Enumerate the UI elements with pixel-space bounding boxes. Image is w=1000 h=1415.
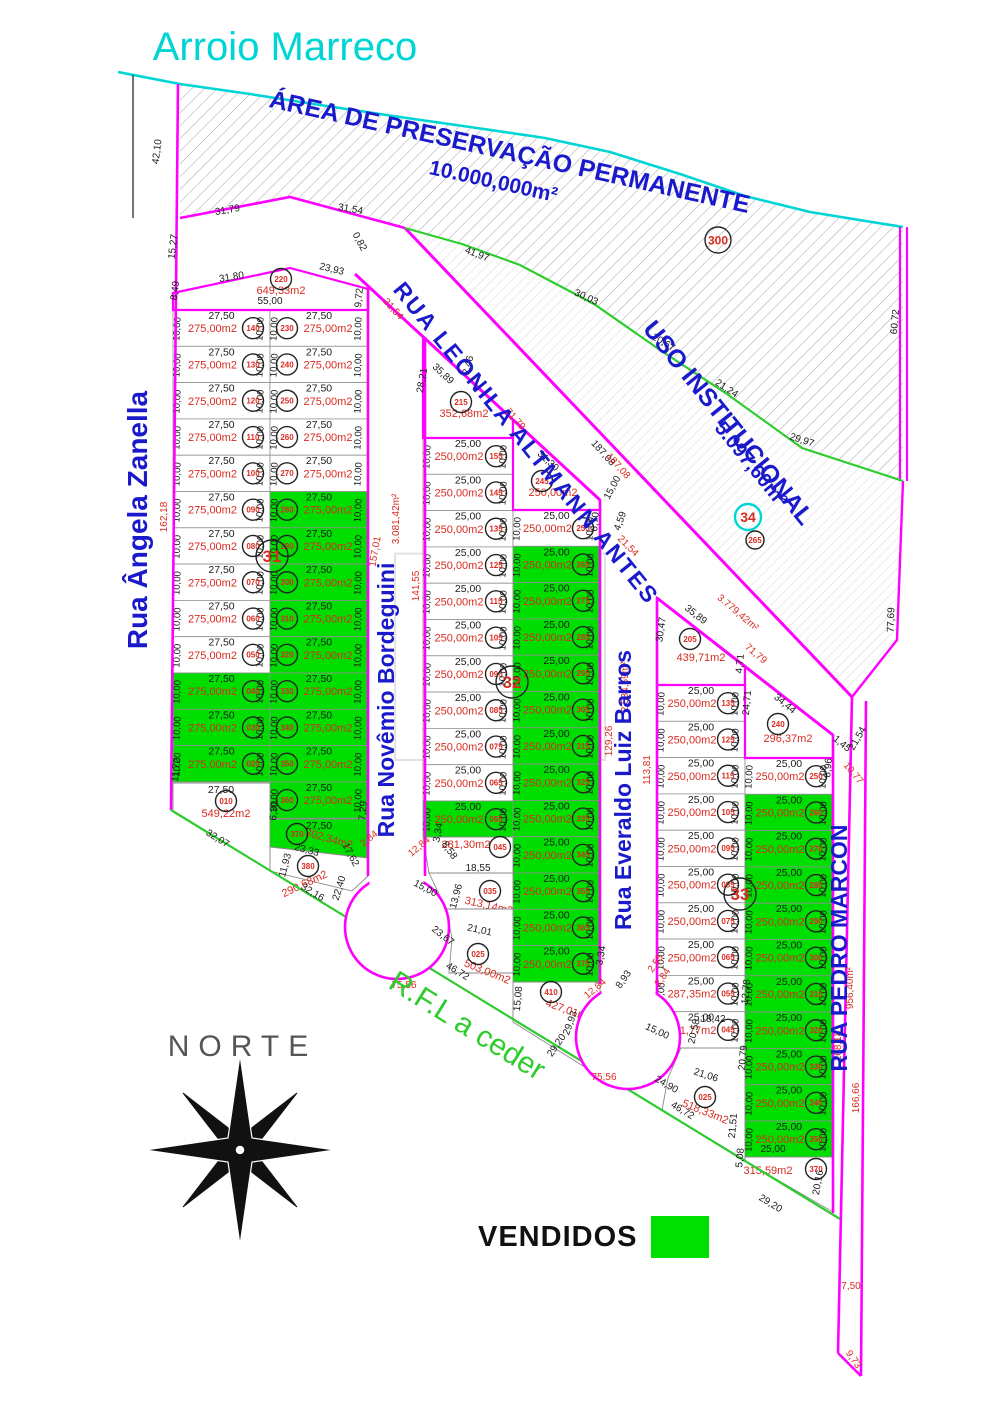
lot-area: 275,00m2 bbox=[304, 323, 353, 335]
dim-label: 10,77 bbox=[841, 760, 866, 787]
lot-height-dim: 10,00 bbox=[352, 535, 364, 559]
lot-height-dim: 10,00 bbox=[511, 771, 523, 795]
lot-area: 250,00m2 bbox=[756, 880, 805, 892]
lot-area: 250,00m2 bbox=[668, 771, 717, 783]
lot-width-dim: 25,00 bbox=[776, 1048, 802, 1060]
lot-31-130-number: 130 bbox=[246, 360, 260, 369]
lot-width-dim: 25,00 bbox=[455, 474, 481, 486]
lot-height-dim: 10,00 bbox=[421, 590, 433, 614]
lot-width-dim: 27,50 bbox=[208, 637, 234, 649]
lot-area: 250,00m2 bbox=[523, 814, 572, 826]
lot-31-260-number: 260 bbox=[280, 433, 294, 442]
lot-31-030-number: 030 bbox=[246, 723, 260, 732]
lot-width-dim: 25,00 bbox=[455, 438, 481, 450]
lot-width-dim: 27,50 bbox=[306, 564, 332, 576]
lot-010-number: 010 bbox=[219, 797, 233, 806]
lot-33-075-number: 075 bbox=[721, 917, 735, 926]
lot-31-300-number: 300 bbox=[280, 578, 294, 587]
lot-area: 275,00m2 bbox=[304, 396, 353, 408]
lot-area: 250,00m2 bbox=[523, 850, 572, 862]
lot-32-155-number: 155 bbox=[489, 452, 503, 461]
lot-area: 250,00m2 bbox=[756, 807, 805, 819]
lot-width-dim: 25,00 bbox=[455, 765, 481, 777]
lot-area: 250,00m2 bbox=[523, 632, 572, 644]
lot-height-dim: 10,00 bbox=[268, 426, 280, 450]
lot-31-310-number: 310 bbox=[280, 614, 294, 623]
lot-area: 275,00m2 bbox=[188, 432, 237, 444]
lot-height-dim: 10,00 bbox=[352, 462, 364, 486]
lot-width-dim: 27,50 bbox=[306, 310, 332, 322]
lot-width-dim: 25,00 bbox=[455, 620, 481, 632]
lot-width-dim: 25,00 bbox=[688, 939, 714, 951]
lot-height-dim: 10,00 bbox=[352, 607, 364, 631]
lot-height-dim: 10,00 bbox=[268, 680, 280, 704]
lot-31-320-number: 320 bbox=[280, 651, 294, 660]
lot-area: 275,00m2 bbox=[188, 577, 237, 589]
dim-label: 42,10 bbox=[151, 138, 165, 165]
lot-width-dim: 25,00 bbox=[543, 764, 569, 776]
quadra-badge-31-number: 31 bbox=[263, 547, 282, 566]
lot-width-dim: 25,00 bbox=[776, 867, 802, 879]
text-rua-pedro-marcon: RUA PEDRO MARCON bbox=[826, 824, 852, 1071]
lot-area: 250,00m2 bbox=[523, 959, 572, 971]
lot-width-dim: 25,00 bbox=[543, 873, 569, 885]
lot-area: 275,00m2 bbox=[304, 505, 353, 517]
lot-width-dim: 25,00 bbox=[543, 546, 569, 558]
lot-area: 250,00m2 bbox=[523, 705, 572, 717]
lot-33-105-number: 105 bbox=[721, 808, 735, 817]
dim-label: 18,55 bbox=[465, 863, 490, 874]
dim-label: 0,82 bbox=[350, 231, 369, 254]
lot-height-dim: 10,00 bbox=[352, 389, 364, 413]
lot-area: 275,00m2 bbox=[304, 432, 353, 444]
lot-32-285-number: 285 bbox=[576, 633, 590, 642]
lot-height-dim: 10,00 bbox=[511, 553, 523, 577]
lot-035-number: 035 bbox=[483, 887, 497, 896]
lot-area: 250,00m2 bbox=[435, 451, 484, 463]
lot-height-dim: 10,00 bbox=[421, 663, 433, 687]
lot-32-265-number: 265 bbox=[576, 560, 590, 569]
lot-width-dim: 25,00 bbox=[688, 903, 714, 915]
lot-width-dim: 27,50 bbox=[208, 492, 234, 504]
lot-area: 275,00m2 bbox=[188, 541, 237, 553]
lot-area: 250,00m2 bbox=[756, 989, 805, 1001]
lot-32-145-number: 145 bbox=[489, 488, 503, 497]
lot-height-dim: 10,00 bbox=[268, 716, 280, 740]
lot-width-dim: 25,00 bbox=[543, 946, 569, 958]
lot-height-dim: 10,00 bbox=[421, 445, 433, 469]
lot-height-dim: 10,00 bbox=[268, 498, 280, 522]
lot-height-dim: 10,00 bbox=[511, 626, 523, 650]
lot-33-260-number: 260 bbox=[809, 808, 823, 817]
lot-area: 250,00m2 bbox=[435, 742, 484, 754]
lot-width-dim: 25,00 bbox=[776, 794, 802, 806]
lot-height-dim: 10,00 bbox=[421, 481, 433, 505]
lot-width-dim: 25,00 bbox=[455, 583, 481, 595]
lot-height-dim: 10,00 bbox=[352, 426, 364, 450]
dim-label: 141,55 bbox=[411, 570, 422, 601]
lot-33-310-number: 310 bbox=[809, 990, 823, 999]
lot-width-dim: 25,00 bbox=[543, 728, 569, 740]
lot-area: 549,22m2 bbox=[202, 808, 251, 820]
lot-33-290-number: 290 bbox=[809, 917, 823, 926]
lot-area: 250,00m2 bbox=[668, 952, 717, 964]
lot-width-dim: 25,00 bbox=[776, 758, 802, 770]
quadra-badge-33-number: 33 bbox=[731, 885, 750, 904]
lot-area: 275,00m2 bbox=[304, 577, 353, 589]
lot-width-dim: 25,00 bbox=[455, 728, 481, 740]
lot-33-045-number: 045 bbox=[721, 1026, 735, 1035]
lot-height-dim: 10,00 bbox=[268, 644, 280, 668]
lot-height-dim: 10,00 bbox=[352, 644, 364, 668]
lot-32-315-number: 315 bbox=[576, 742, 590, 751]
text-rua-ngela-zanella: Rua Ângela Zanella bbox=[122, 390, 153, 649]
lot-area: 275,00m2 bbox=[188, 650, 237, 662]
lot-width-dim: 25,00 bbox=[688, 721, 714, 733]
lot-area: 250,00m2 bbox=[435, 487, 484, 499]
lot-410-number: 410 bbox=[544, 988, 558, 997]
lot-width-dim: 25,00 bbox=[688, 867, 714, 879]
lot-area: 250,00m2 bbox=[756, 1098, 805, 1110]
lot-width-dim: 27,50 bbox=[208, 346, 234, 358]
lot-area: 250,00m2 bbox=[523, 886, 572, 898]
lot-31-050-number: 050 bbox=[246, 651, 260, 660]
lot-height-dim: 10,00 bbox=[743, 765, 755, 789]
lot-025-number: 025 bbox=[471, 950, 485, 959]
lot-width-dim: 27,50 bbox=[208, 709, 234, 721]
lot-area: 275,00m2 bbox=[188, 505, 237, 517]
lot-205-number: 205 bbox=[683, 635, 697, 644]
lot-area: 275,00m2 bbox=[304, 468, 353, 480]
lot-32-335-number: 335 bbox=[576, 814, 590, 823]
lot-height-dim: 10,00 bbox=[352, 752, 364, 776]
lot-area: 250,00m2 bbox=[756, 916, 805, 928]
lot-width-dim: 25,00 bbox=[776, 1121, 802, 1133]
lot-width-dim: 27,50 bbox=[306, 492, 332, 504]
marker-34-number: 34 bbox=[740, 509, 756, 525]
pedro-e bbox=[861, 701, 866, 1376]
lot-32-085-number: 085 bbox=[489, 706, 503, 715]
lot-32-295-number: 295 bbox=[576, 669, 590, 678]
lot-width-dim: 25,00 bbox=[776, 940, 802, 952]
lot-025-number: 025 bbox=[698, 1093, 712, 1102]
dim-label: 12,78 bbox=[740, 978, 753, 1004]
dim-label: 77,69 bbox=[886, 607, 898, 633]
lot-33-330-number: 330 bbox=[809, 1062, 823, 1071]
lot-31-350-number: 350 bbox=[280, 760, 294, 769]
lot-width-dim: 27,50 bbox=[306, 746, 332, 758]
lot-33-055-number: 055 bbox=[721, 989, 735, 998]
lot-height-dim: 10,00 bbox=[268, 317, 280, 341]
lot-area: 250,00m2 bbox=[435, 524, 484, 536]
lot-height-dim: 10,00 bbox=[352, 716, 364, 740]
lot-width-dim: 25,00 bbox=[455, 547, 481, 559]
lot-area: 250,00m2 bbox=[435, 669, 484, 681]
lot-height-dim: 10,00 bbox=[171, 353, 183, 377]
site-plan: M 27,5010,0010,00275,00m214027,5010,0010… bbox=[0, 0, 1000, 1415]
dim-label: 55,00 bbox=[257, 296, 282, 307]
lot-width-dim: 25,00 bbox=[776, 1012, 802, 1024]
lot-31-140-number: 140 bbox=[246, 324, 260, 333]
lot-area: 250,00m2 bbox=[523, 741, 572, 753]
lot-31-090-number: 090 bbox=[246, 506, 260, 515]
lot-33-270-number: 270 bbox=[809, 845, 823, 854]
lot-width-dim: 27,50 bbox=[208, 419, 234, 431]
lot-32-275-number: 275 bbox=[576, 597, 590, 606]
lot-33-350-number: 350 bbox=[809, 1135, 823, 1144]
dim-label: 21,51 bbox=[727, 1112, 740, 1138]
dim-label: 5,08 bbox=[734, 1147, 747, 1168]
lot-area: 250,00m2 bbox=[668, 807, 717, 819]
dim-label: 9,72 bbox=[353, 287, 366, 308]
dim-label: 18,42 bbox=[700, 1014, 725, 1025]
lot-area: 275,00m2 bbox=[304, 614, 353, 626]
legend-label: VENDIDOS bbox=[478, 1221, 637, 1254]
lot-area: 250,00m2 bbox=[523, 523, 572, 535]
dim-label: 113,81 bbox=[642, 755, 653, 785]
lot-area: 275,00m2 bbox=[304, 359, 353, 371]
lot-area: 275,00m2 bbox=[188, 359, 237, 371]
lot-area: 275,00m2 bbox=[304, 759, 353, 771]
lot-height-dim: 10,00 bbox=[352, 498, 364, 522]
lot-width-dim: 27,50 bbox=[306, 455, 332, 467]
lot-area: 250,00m2 bbox=[668, 880, 717, 892]
lot-31-280-number: 280 bbox=[280, 506, 294, 515]
lot-33-095-number: 095 bbox=[721, 844, 735, 853]
lot-220-number: 220 bbox=[274, 275, 288, 284]
lot-height-dim: 10,00 bbox=[352, 317, 364, 341]
lot-32-135-number: 135 bbox=[489, 525, 503, 534]
lot-32-075-number: 075 bbox=[489, 742, 503, 751]
lot-area: 275,00m2 bbox=[188, 323, 237, 335]
lot-width-dim: 27,50 bbox=[306, 637, 332, 649]
dim-label: 3.081,42m² bbox=[391, 493, 402, 544]
lot-area: 250,00m2 bbox=[756, 1062, 805, 1074]
lot-area: 275,00m2 bbox=[188, 686, 237, 698]
legend: VENDIDOS bbox=[478, 1216, 709, 1258]
lot-area: 250,00m2 bbox=[668, 843, 717, 855]
lot-045-number: 045 bbox=[493, 843, 507, 852]
lot-area: 275,00m2 bbox=[188, 468, 237, 480]
dim-label: 7,29 bbox=[357, 800, 370, 821]
lot-height-dim: 10,00 bbox=[352, 680, 364, 704]
lot-31-060-number: 060 bbox=[246, 614, 260, 623]
dim-label: 24,71 bbox=[741, 689, 754, 715]
lot-height-dim: 10,00 bbox=[421, 699, 433, 723]
lot-width-dim: 27,50 bbox=[306, 346, 332, 358]
lot-area: 275,00m2 bbox=[304, 722, 353, 734]
lot-height-dim: 10,00 bbox=[268, 607, 280, 631]
lot-width-dim: 25,00 bbox=[455, 511, 481, 523]
lot-370-number: 370 bbox=[290, 830, 304, 839]
lot-height-dim: 10,00 bbox=[511, 589, 523, 613]
lot-31-020-number: 020 bbox=[246, 760, 260, 769]
lot-height-dim: 10,00 bbox=[352, 571, 364, 595]
lot-height-dim: 10,00 bbox=[511, 517, 523, 541]
lot-width-dim: 25,00 bbox=[688, 685, 714, 697]
lot-height-dim: 10,00 bbox=[421, 517, 433, 541]
lot-31-040-number: 040 bbox=[246, 687, 260, 696]
lot-area: 250,00m2 bbox=[668, 698, 717, 710]
lot-area: 250,00m2 bbox=[668, 916, 717, 928]
lot-height-dim: 10,00 bbox=[743, 837, 755, 861]
lot-width-dim: 25,00 bbox=[455, 692, 481, 704]
lot-33-280-number: 280 bbox=[809, 881, 823, 890]
lot-width-dim: 25,00 bbox=[688, 975, 714, 987]
lot-area: 275,00m2 bbox=[304, 650, 353, 662]
compass-hub bbox=[235, 1145, 245, 1155]
lot-height-dim: 10,00 bbox=[268, 353, 280, 377]
lot-height-dim: 10,00 bbox=[743, 946, 755, 970]
lot-width-dim: 27,50 bbox=[208, 383, 234, 395]
lot-width-dim: 25,00 bbox=[688, 758, 714, 770]
lot-height-dim: 10,00 bbox=[268, 752, 280, 776]
lot-height-dim: 10,00 bbox=[171, 317, 183, 341]
lot-width-dim: 25,00 bbox=[543, 837, 569, 849]
lot-31-100-number: 100 bbox=[246, 469, 260, 478]
lot-area: 275,00m2 bbox=[188, 396, 237, 408]
dim-label: 29,20 bbox=[757, 1193, 784, 1216]
lot-width-dim: 27,50 bbox=[306, 600, 332, 612]
lot-width-dim: 25,00 bbox=[543, 583, 569, 595]
lot-area: 250,00m2 bbox=[435, 560, 484, 572]
lot-height-dim: 10,00 bbox=[171, 389, 183, 413]
dim-label: 7,50 bbox=[841, 1281, 861, 1292]
text-rua-everaldo-luiz-barros: Rua Everaldo Luiz Barros bbox=[610, 650, 636, 930]
lot-height-dim: 10,00 bbox=[268, 389, 280, 413]
lot-area: 250,00m2 bbox=[523, 596, 572, 608]
lot-33-115-number: 115 bbox=[722, 772, 735, 781]
dim-label: 20,79 bbox=[737, 1044, 750, 1070]
dim-label: 15,27 bbox=[167, 233, 181, 260]
lot-area: 250,00m2 bbox=[435, 596, 484, 608]
dim-label: 4,71 bbox=[734, 653, 747, 674]
lot-31-250-number: 250 bbox=[280, 397, 294, 406]
compass-rose bbox=[145, 1055, 335, 1245]
lot-width-dim: 27,50 bbox=[306, 419, 332, 431]
lot-33-135-number: 135 bbox=[721, 699, 735, 708]
lot-width-dim: 27,50 bbox=[306, 383, 332, 395]
lot-31-230-number: 230 bbox=[280, 324, 294, 333]
lot-width-dim: 25,00 bbox=[455, 656, 481, 668]
lot-area: 250,00m2 bbox=[435, 778, 484, 790]
marker-265-number: 265 bbox=[748, 536, 762, 545]
lot-area: 287,35m2 bbox=[668, 989, 717, 1001]
lot-32-125-number: 125 bbox=[489, 561, 503, 570]
lot-height-dim: 10,00 bbox=[421, 626, 433, 650]
lot-31-120-number: 120 bbox=[246, 397, 260, 406]
lot-width-dim: 25,00 bbox=[688, 794, 714, 806]
lot-height-dim: 10,00 bbox=[743, 910, 755, 934]
dim-label: 25,00 bbox=[760, 1144, 785, 1155]
lot-width-dim: 27,50 bbox=[208, 564, 234, 576]
lot-33-300-number: 300 bbox=[809, 954, 823, 963]
lot-area: 250,00m2 bbox=[523, 559, 572, 571]
lot-height-dim: 10,00 bbox=[743, 801, 755, 825]
text-arroio-marreco: Arroio Marreco bbox=[153, 25, 418, 69]
lot-area: 275,00m2 bbox=[304, 686, 353, 698]
compass-label: NORTE bbox=[155, 1030, 330, 1064]
lot-215-number: 215 bbox=[454, 398, 468, 407]
dim-label: 71,79 bbox=[742, 642, 769, 667]
lot-32-355-number: 355 bbox=[576, 887, 590, 896]
lot-33-320-number: 320 bbox=[809, 1026, 823, 1035]
lot-32-055-number: 055 bbox=[489, 815, 503, 824]
lot-width-dim: 27,50 bbox=[208, 528, 234, 540]
marker-300-number: 300 bbox=[708, 233, 728, 247]
quadra-badge-32-number: 32 bbox=[503, 673, 522, 692]
dim-label: 3.779,42m² bbox=[715, 593, 761, 634]
lot-width-dim: 25,00 bbox=[543, 655, 569, 667]
lot-31-340-number: 340 bbox=[280, 723, 294, 732]
lot-380-number: 380 bbox=[301, 862, 315, 871]
lot-width-dim: 27,50 bbox=[208, 746, 234, 758]
lot-width-dim: 27,50 bbox=[208, 310, 234, 322]
lot-height-dim: 10,00 bbox=[268, 571, 280, 595]
lot-31-270-number: 270 bbox=[280, 469, 294, 478]
lot-area: 296,37m2 bbox=[764, 733, 813, 745]
lot-width-dim: 25,00 bbox=[455, 801, 481, 813]
lot-area: 275,00m2 bbox=[304, 795, 353, 807]
lot-area: 275,00m2 bbox=[188, 759, 237, 771]
lot-width-dim: 25,00 bbox=[776, 976, 802, 988]
lot-240-number: 240 bbox=[771, 720, 785, 729]
lot-height-dim: 10,00 bbox=[421, 554, 433, 578]
lot-height-dim: 10,00 bbox=[421, 808, 433, 832]
lot-area: 250,00m2 bbox=[523, 922, 572, 934]
lot-area: 275,00m2 bbox=[188, 722, 237, 734]
lot-31-240-number: 240 bbox=[280, 360, 294, 369]
lot-width-dim: 25,00 bbox=[543, 692, 569, 704]
lot-33-250-number: 250 bbox=[809, 772, 823, 781]
lot-width-dim: 27,50 bbox=[306, 782, 332, 794]
dim-label: 6,30 bbox=[268, 800, 281, 821]
lot-area: 250,00m2 bbox=[756, 771, 805, 783]
lot-33-125-number: 125 bbox=[721, 735, 735, 744]
subdivision-map: M 27,5010,0010,00275,00m214027,5010,0010… bbox=[0, 0, 1000, 1415]
dim-label: 60,72 bbox=[889, 308, 902, 334]
lot-area: 439,71m2 bbox=[677, 652, 726, 664]
lot-height-dim: 10,00 bbox=[268, 462, 280, 486]
lot-32-325-number: 325 bbox=[576, 778, 590, 787]
lot-width-dim: 27,50 bbox=[306, 673, 332, 685]
lot-height-dim: 10,00 bbox=[421, 735, 433, 759]
lot-width-dim: 27,50 bbox=[208, 455, 234, 467]
lot-area: 250,00m2 bbox=[756, 844, 805, 856]
dim-label: 23,93 bbox=[318, 261, 345, 278]
lot-area: 352,68m2 bbox=[440, 408, 489, 420]
lot-area: 250,00m2 bbox=[668, 734, 717, 746]
lot-width-dim: 27,50 bbox=[306, 709, 332, 721]
dim-label: 166,66 bbox=[851, 1082, 862, 1113]
lot-32-305-number: 305 bbox=[576, 706, 590, 715]
lot-31-070-number: 070 bbox=[246, 578, 260, 587]
lot-height-dim: 10,00 bbox=[511, 735, 523, 759]
lot-width-dim: 25,00 bbox=[543, 619, 569, 631]
lot-area: 275,00m2 bbox=[304, 541, 353, 553]
lot-area: 250,00m2 bbox=[523, 777, 572, 789]
dim-label: 162,18 bbox=[159, 501, 170, 532]
dim-label: 15,08 bbox=[512, 985, 525, 1011]
novemio-culdesac-neck bbox=[370, 868, 424, 928]
lot-32-345-number: 345 bbox=[576, 851, 590, 860]
legend-sold-swatch bbox=[651, 1216, 709, 1258]
lot-area: 250,00m2 bbox=[756, 1025, 805, 1037]
dim-label: 11,72 bbox=[170, 757, 183, 783]
lot-height-dim: 10,00 bbox=[743, 1019, 755, 1043]
lot-area: 250,00m2 bbox=[435, 705, 484, 717]
lot-32-375-number: 375 bbox=[576, 960, 590, 969]
